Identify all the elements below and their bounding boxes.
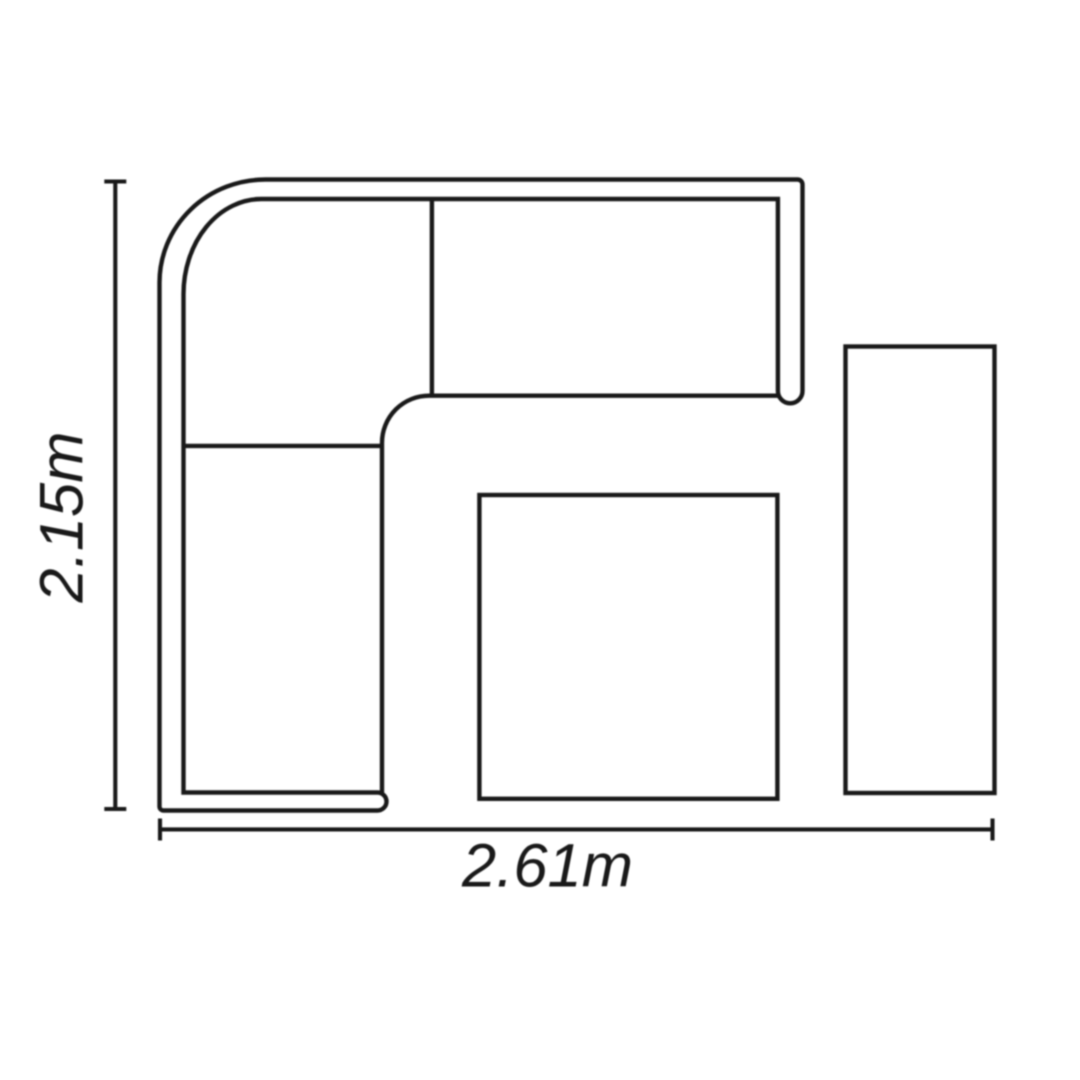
svg-text:2.15m: 2.15m	[28, 432, 97, 604]
svg-text:2.61m: 2.61m	[461, 832, 633, 901]
